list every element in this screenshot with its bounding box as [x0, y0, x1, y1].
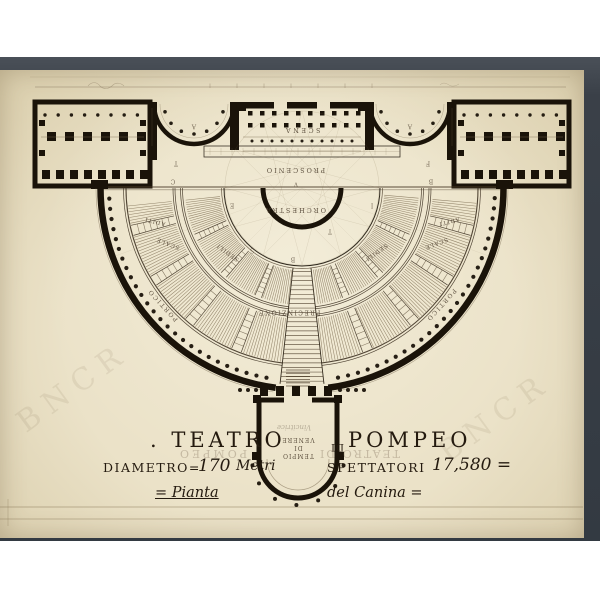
scena-building — [35, 102, 569, 190]
cavea-seating — [123, 188, 480, 384]
scanned-photo-page: BNCR BNCR SCENA PROSCENIO ORCHESTRA PREC… — [0, 0, 600, 600]
orchestra-construction-lines — [116, 111, 488, 328]
theatre-plan-drawing — [0, 0, 600, 600]
temple-of-venus — [250, 188, 345, 507]
sheet-border-lines — [0, 77, 583, 526]
